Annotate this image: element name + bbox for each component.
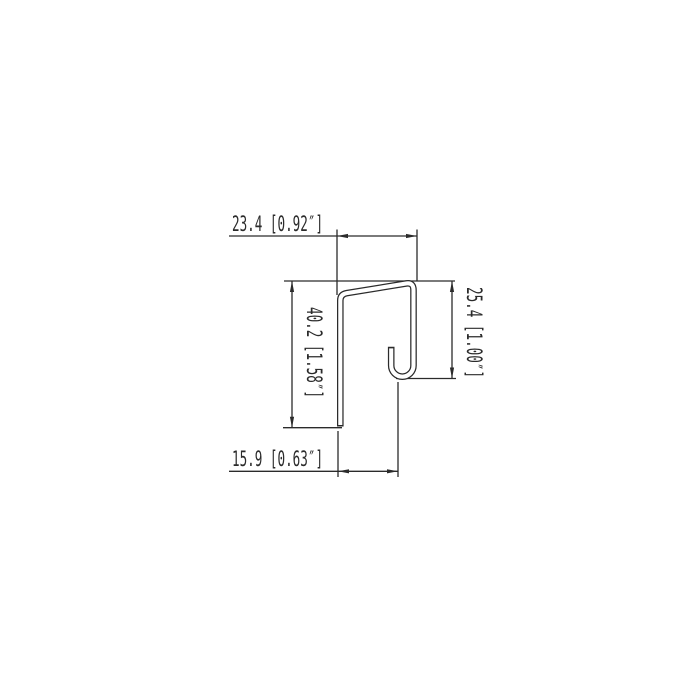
profile-outline-inner	[340, 283, 413, 425]
dimension-label-bottom-width: 15.9 [0.63″]	[232, 449, 323, 470]
profile-outline-outer	[340, 283, 413, 426]
dimension-label-left-height: 40.2 [1.58″]	[303, 307, 324, 398]
arrow-right-up	[450, 281, 454, 292]
arrow-top-right	[406, 234, 417, 238]
profile-drawing-svg	[0, 0, 700, 700]
arrow-bottom-left	[338, 469, 349, 473]
arrow-left-down	[290, 417, 294, 428]
arrow-bottom-right	[387, 469, 398, 473]
arrow-left-up	[290, 281, 294, 292]
dimension-label-right-height: 25.4 [1.00″]	[463, 287, 484, 378]
arrow-top-left	[337, 234, 348, 238]
dimension-label-top-width: 23.4 [0.92″]	[232, 214, 323, 235]
drawing-canvas: 23.4 [0.92″] 40.2 [1.58″] 25.4 [1.00″] 1…	[0, 0, 700, 700]
arrow-right-down	[450, 368, 454, 379]
